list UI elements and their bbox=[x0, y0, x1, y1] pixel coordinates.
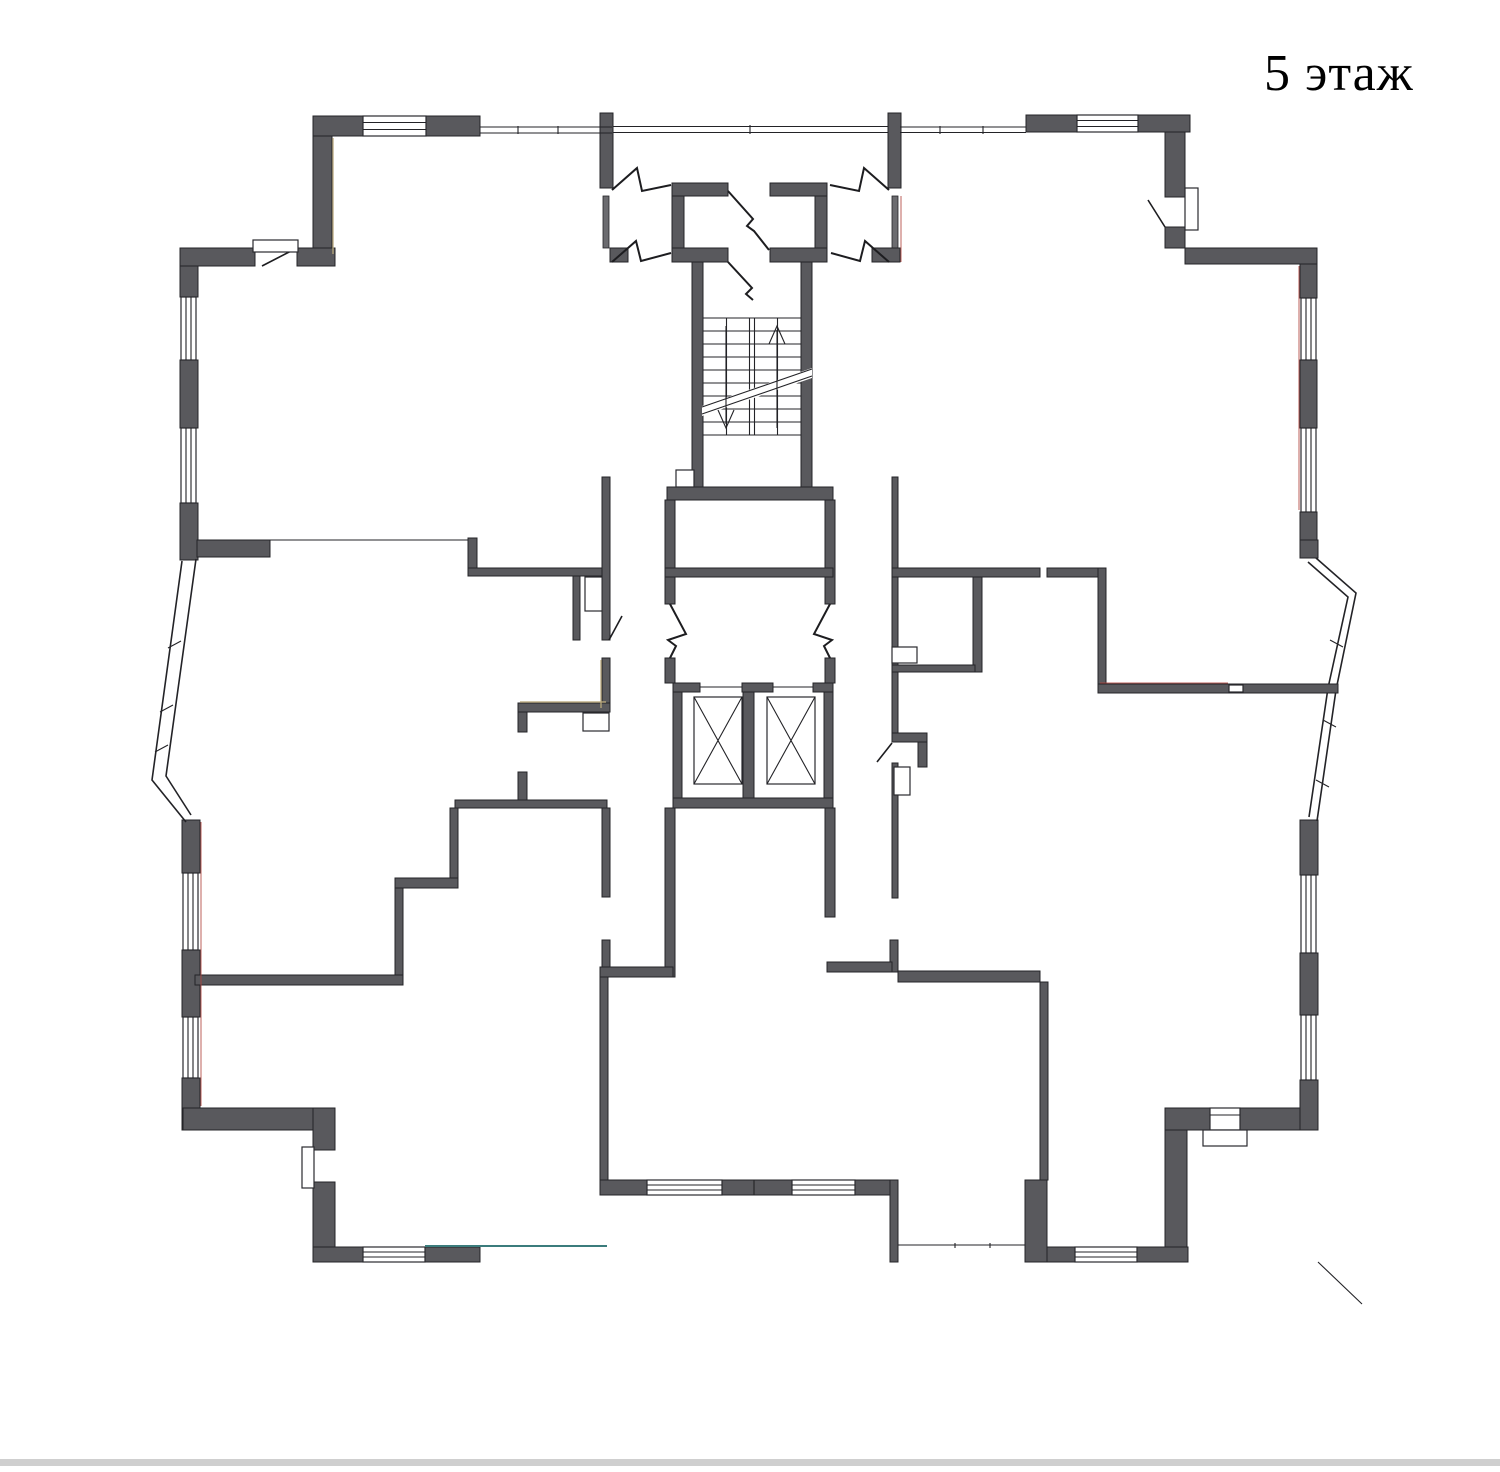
vent-box bbox=[302, 1147, 314, 1188]
elevator-block bbox=[665, 683, 835, 977]
vent-box bbox=[583, 713, 609, 731]
smoke-door-zigzags bbox=[612, 168, 889, 300]
lobby-door-zigzag-left bbox=[668, 604, 686, 658]
vent-box bbox=[1203, 1130, 1247, 1146]
elevator-right bbox=[767, 697, 815, 784]
vent-box bbox=[894, 767, 910, 795]
floor-plan-page: 5 этаж bbox=[0, 0, 1500, 1472]
door-leaf bbox=[877, 743, 892, 762]
lobby-door-zigzag-right bbox=[814, 604, 832, 658]
vent-box bbox=[253, 240, 298, 252]
door-leaf bbox=[609, 616, 622, 640]
entrance-vestibule bbox=[603, 168, 900, 300]
terrace-edges bbox=[425, 1243, 1025, 1248]
cad-hairlines bbox=[201, 138, 1299, 1106]
vent-box bbox=[676, 470, 694, 487]
bay-window-left bbox=[152, 559, 196, 822]
vent-box bbox=[892, 647, 917, 663]
elevator-left bbox=[694, 697, 742, 784]
floor-plan-canvas bbox=[0, 0, 1500, 1472]
interior-walls-left bbox=[195, 240, 673, 985]
stair-treads bbox=[703, 318, 801, 435]
stair-up-arrow bbox=[769, 326, 785, 428]
bottom-strip bbox=[0, 1459, 1500, 1466]
door-leaf bbox=[1148, 200, 1165, 227]
vent-box bbox=[1185, 188, 1198, 230]
stair-down-arrow bbox=[718, 326, 734, 428]
elevator-lobby bbox=[665, 500, 835, 683]
